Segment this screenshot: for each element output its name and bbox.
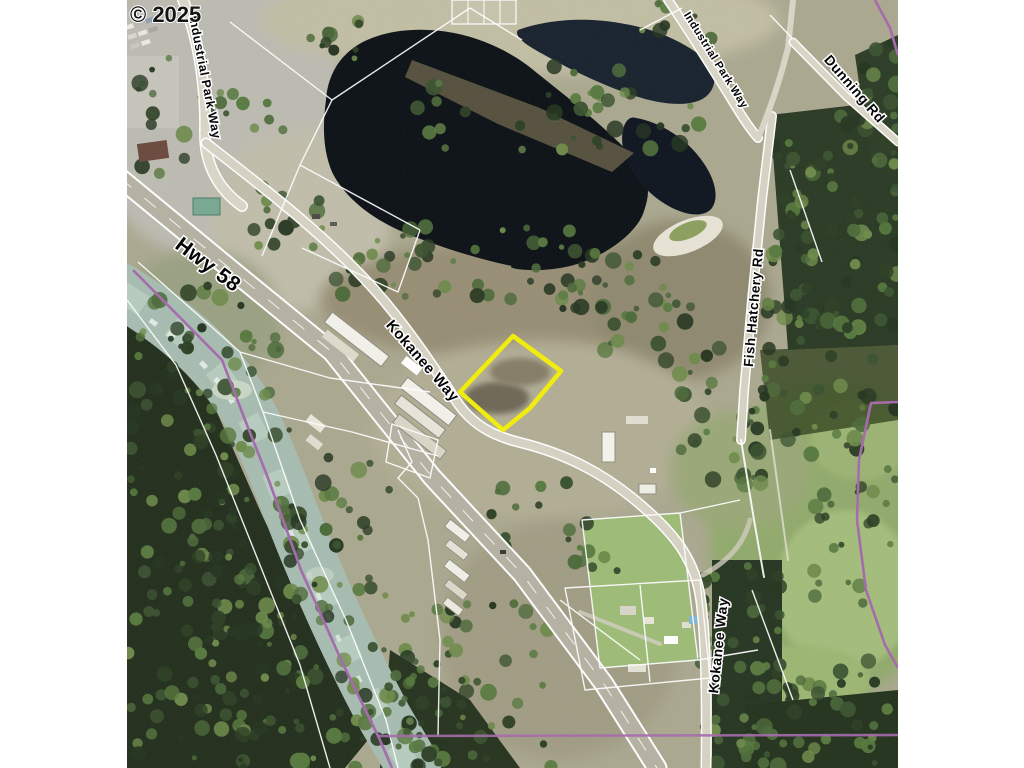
photo-grain: [127, 0, 898, 768]
aerial-map: Industrial Park Way Hwy 58 Kokanee Way I…: [0, 0, 1024, 768]
copyright-watermark: © 2025: [130, 2, 201, 27]
listing-aerial-photo: Industrial Park Way Hwy 58 Kokanee Way I…: [0, 0, 1024, 768]
